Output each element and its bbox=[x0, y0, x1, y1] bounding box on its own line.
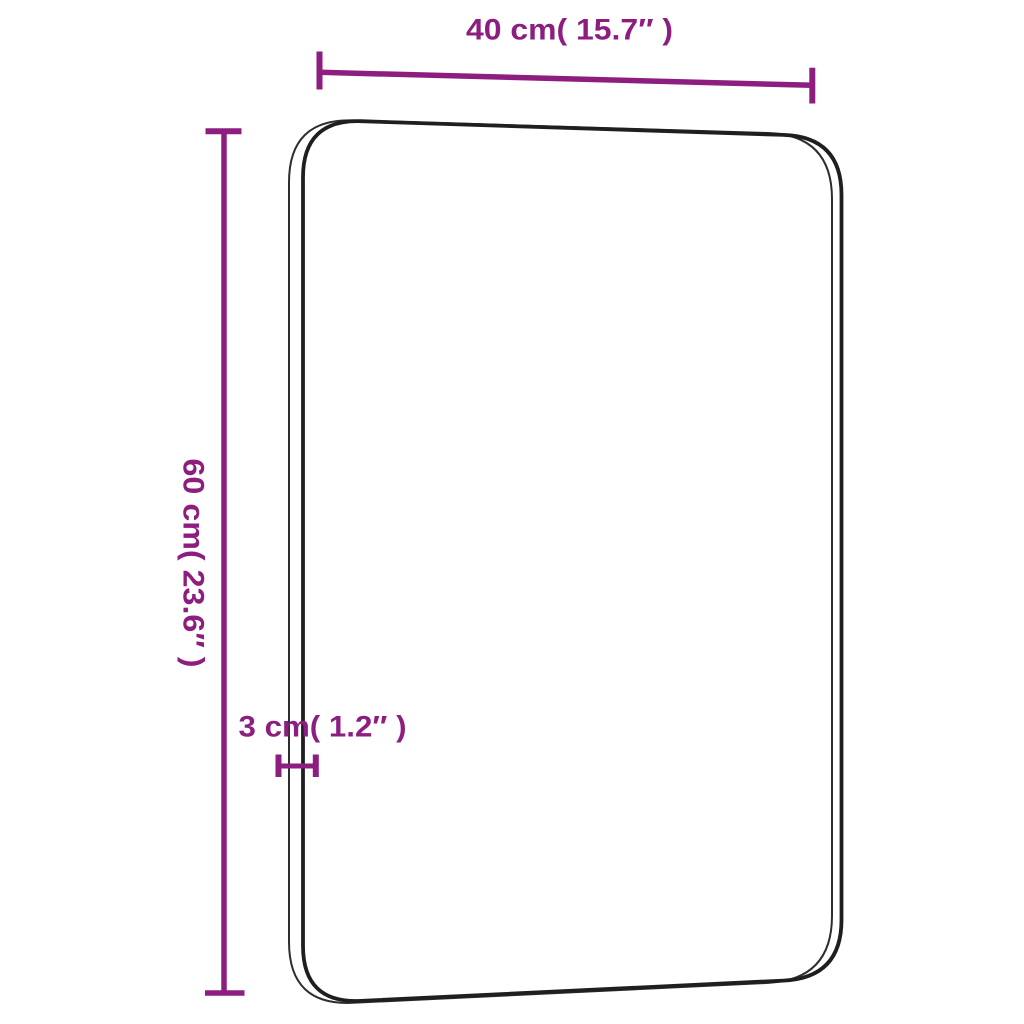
svg-text:60 cm( 23.6″ ): 60 cm( 23.6″ ) bbox=[177, 459, 210, 668]
svg-text:3 cm( 1.2″ ): 3 cm( 1.2″ ) bbox=[239, 711, 407, 744]
svg-text:40 cm( 15.7″ ): 40 cm( 15.7″ ) bbox=[466, 14, 673, 47]
